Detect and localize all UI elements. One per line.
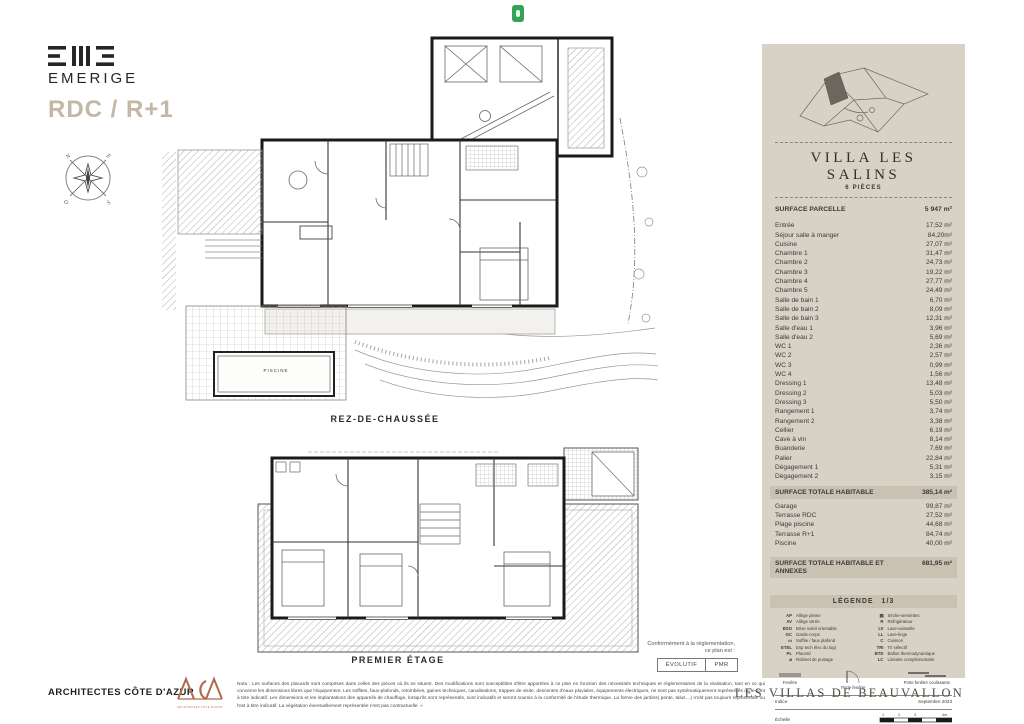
surface-room-value: 17,52 m²: [926, 221, 952, 230]
legend-row: LCLinéaire complémentaire: [867, 657, 953, 663]
parcel-surface-row: SURFACE PARCELLE 5 947 m²: [775, 205, 952, 214]
surface-room-value: 13,48 m²: [926, 379, 952, 388]
surface-room-value: 1,56 m²: [930, 370, 952, 379]
surface-room-label: Chambre 3: [775, 268, 808, 277]
surface-room-label: Garage: [775, 502, 797, 511]
surface-room-value: 84,74 m²: [926, 530, 952, 539]
parcel-label: SURFACE PARCELLE: [775, 205, 846, 214]
surface-room-label: Terrasse R+1: [775, 530, 814, 539]
surface-room-value: 5,50 m²: [930, 398, 952, 407]
total-habitable-band: SURFACE TOTALE HABITABLE 385,14 m²: [770, 486, 957, 499]
surface-room-value: 3,74 m²: [930, 407, 952, 416]
surface-room-value: 24,49 m²: [926, 286, 952, 295]
surface-row: Entrée17,52 m²: [775, 221, 952, 230]
surface-room-value: 24,73 m²: [926, 258, 952, 267]
legend-label: Linéaire complémentaire: [888, 657, 953, 663]
legend-abbr: ⌀: [775, 657, 796, 663]
villa-subtitle: 6 PIÈCES: [775, 185, 952, 191]
villa-title: VILLA LES SALINS: [775, 150, 952, 184]
scale-bar: 1 2 3 4m: [866, 713, 952, 724]
room-surface-list: Entrée17,52 m²Séjour salle à manger84,20…: [775, 221, 952, 481]
surface-room-label: Piscine: [775, 539, 796, 548]
surface-row: Plage piscine44,68 m²: [775, 520, 952, 529]
surface-room-value: 8,14 m²: [930, 435, 952, 444]
surface-row: WC 12,36 m²: [775, 342, 952, 351]
surface-row: Chambre 131,47 m²: [775, 249, 952, 258]
surface-room-label: Chambre 1: [775, 249, 808, 258]
surface-room-label: Séjour salle à manger: [775, 231, 839, 240]
surface-row: Dégagement 23,15 m²: [775, 472, 952, 481]
surface-room-label: Dégagement 2: [775, 472, 818, 481]
total-habitable-label: SURFACE TOTALE HABITABLE: [775, 489, 874, 496]
surface-room-value: 3,96 m²: [930, 324, 952, 333]
compliance-options: ÉVOLUTIF PMR: [657, 658, 738, 672]
pmr-button[interactable]: PMR: [705, 658, 738, 672]
surface-room-label: Palier: [775, 454, 792, 463]
surface-room-label: Cuisine: [775, 240, 797, 249]
surface-room-value: 31,47 m²: [926, 249, 952, 258]
legend-columns: APAllège pleineAVAllège vitréeBSOBrise s…: [775, 613, 952, 663]
legend-title-band: LÉGENDE1/3: [770, 595, 957, 608]
surface-room-label: Plage piscine: [775, 520, 814, 529]
compliance-note: Conformément à la réglementation, ce pla…: [590, 641, 735, 655]
surface-room-value: 12,31 m²: [926, 314, 952, 323]
info-panel: VILLA LES SALINS 6 PIÈCES SURFACE PARCEL…: [762, 44, 965, 678]
evolutif-button[interactable]: ÉVOLUTIF: [657, 658, 705, 672]
surface-room-value: 19,22 m²: [926, 268, 952, 277]
architect-name: ARCHITECTES CÔTE D'AZUR: [48, 687, 194, 698]
surface-room-label: Dégagement 1: [775, 463, 818, 472]
surface-room-label: Dressing 3: [775, 398, 807, 407]
floorplan-rdc: [150, 22, 660, 422]
rdc-caption: REZ-DE-CHAUSSÉE: [235, 414, 535, 424]
surface-room-value: 3,15 m²: [930, 472, 952, 481]
surface-room-label: Rangement 1: [775, 407, 815, 416]
scale-bar-icon: [866, 717, 952, 724]
surface-row: Rangement 13,74 m²: [775, 407, 952, 416]
aca-logo: ARCHITECTES CÔTE D'AZUR: [176, 675, 224, 709]
plan-sheet: EMERIGE RDC / R+1 N E S O: [0, 0, 1024, 724]
surface-row: Dressing 35,50 m²: [775, 398, 952, 407]
divider: [775, 197, 952, 198]
surface-row: Dressing 25,03 m²: [775, 389, 952, 398]
brand-name: EMERIGE: [48, 70, 138, 87]
compass-s: S: [106, 200, 112, 207]
surface-row: Salle d'eau 25,69 m²: [775, 333, 952, 342]
surface-room-value: 8,09 m²: [930, 305, 952, 314]
legend-left-column: APAllège pleineAVAllège vitréeBSOBrise s…: [775, 613, 861, 663]
echelle-label: Échelle: [775, 717, 790, 722]
surface-room-label: Cave à vin: [775, 435, 806, 444]
surface-row: WC 30,99 m²: [775, 361, 952, 370]
surface-room-label: Chambre 4: [775, 277, 808, 286]
surface-row: Chambre 524,49 m²: [775, 286, 952, 295]
surface-room-label: Dressing 2: [775, 389, 807, 398]
annex-surface-list: Garage99,87 m²Terrasse RDC27,52 m²Plage …: [775, 502, 952, 548]
project-name: LES VILLAS DE BEAUVALLON: [735, 686, 964, 701]
surface-row: Terrasse RDC27,52 m²: [775, 511, 952, 520]
surface-room-value: 3,38 m²: [930, 417, 952, 426]
surface-row: Dressing 113,48 m²: [775, 379, 952, 388]
compass-o: O: [62, 199, 70, 207]
surface-room-value: 2,36 m²: [930, 342, 952, 351]
surface-row: Rangement 23,38 m²: [775, 417, 952, 426]
surface-row: Cuisine27,07 m²: [775, 240, 952, 249]
legend-abbr: LC: [867, 657, 888, 663]
total-habitable-value: 385,14 m²: [922, 489, 952, 496]
surface-room-value: 27,52 m²: [926, 511, 952, 520]
floorplan-r1: [248, 446, 648, 664]
surface-room-value: 6,19 m²: [930, 426, 952, 435]
surface-room-value: 27,07 m²: [926, 240, 952, 249]
surface-row: Buanderie7,69 m²: [775, 444, 952, 453]
r1-caption: PREMIER ÉTAGE: [248, 655, 548, 665]
surface-room-value: 27,77 m²: [926, 277, 952, 286]
aca-logo-icon: [176, 675, 224, 703]
surface-row: Dégagement 15,31 m²: [775, 463, 952, 472]
surface-room-label: Salle de bain 1: [775, 296, 819, 305]
total-annexes-band: SURFACE TOTALE HABITABLE ET ANNEXES 681,…: [770, 557, 957, 578]
sliding-door-icon: [907, 670, 947, 679]
divider: [775, 142, 952, 143]
parcel-value: 5 947 m²: [925, 205, 952, 214]
compliance-line1: Conformément à la réglementation,: [590, 641, 735, 648]
surface-room-value: 0,99 m²: [930, 361, 952, 370]
surface-row: Salle de bain 28,09 m²: [775, 305, 952, 314]
legend-right-column: ▤Sèche-serviettesRRéfrigérateurLVLave-va…: [867, 613, 953, 663]
surface-row: Salle de bain 312,31 m²: [775, 314, 952, 323]
surface-room-value: 5,03 m²: [930, 389, 952, 398]
surface-room-value: 44,68 m²: [926, 520, 952, 529]
surface-row: Salle de bain 16,70 m²: [775, 296, 952, 305]
surface-row: Terrasse R+184,74 m²: [775, 530, 952, 539]
surface-room-value: 6,70 m²: [930, 296, 952, 305]
green-marker-icon: [512, 5, 524, 22]
legal-note: Nota : Les surfaces des placards sont co…: [237, 681, 765, 710]
surface-row: Chambre 224,73 m²: [775, 258, 952, 267]
french-door-icon: [845, 670, 861, 684]
window-icon: [777, 670, 803, 679]
surface-room-value: 5,69 m²: [930, 333, 952, 342]
surface-room-value: 40,00 m²: [926, 539, 952, 548]
surface-row: Chambre 319,22 m²: [775, 268, 952, 277]
emerige-logo-icon: [48, 46, 114, 66]
pool-label: PISCINE: [246, 368, 306, 373]
surface-room-value: 7,69 m²: [930, 444, 952, 453]
surface-room-label: Salle de bain 3: [775, 314, 819, 323]
legend-title: LÉGENDE: [833, 598, 874, 605]
surface-row: Cave à vin8,14 m²: [775, 435, 952, 444]
total-annexes-label: SURFACE TOTALE HABITABLE ET ANNEXES: [775, 560, 893, 575]
surface-room-value: 22,84 m²: [926, 454, 952, 463]
surface-room-label: Chambre 2: [775, 258, 808, 267]
compass-e: E: [104, 153, 112, 161]
surface-room-label: WC 4: [775, 370, 791, 379]
surface-room-label: Cellier: [775, 426, 794, 435]
surface-row: Salle d'eau 13,96 m²: [775, 324, 952, 333]
site-plan-sketch: [794, 60, 934, 142]
compass-icon: N E S O: [56, 146, 120, 210]
surface-room-value: 5,31 m²: [930, 463, 952, 472]
compass-n: N: [64, 153, 72, 161]
surface-room-label: Salle d'eau 1: [775, 324, 813, 333]
surface-row: WC 41,56 m²: [775, 370, 952, 379]
surface-room-label: WC 3: [775, 361, 791, 370]
surface-room-value: 84,20m²: [928, 231, 952, 240]
surface-room-label: Salle de bain 2: [775, 305, 819, 314]
legend-row: ⌀Robinet de puisage: [775, 657, 861, 663]
surface-room-value: 2,57 m²: [930, 351, 952, 360]
emerige-logo: EMERIGE: [48, 46, 138, 87]
surface-room-label: Terrasse RDC: [775, 511, 816, 520]
window-label: Fenêtre: [783, 680, 797, 685]
surface-room-label: Chambre 5: [775, 286, 808, 295]
surface-room-label: WC 1: [775, 342, 791, 351]
surface-room-label: Buanderie: [775, 444, 805, 453]
legend-label: Robinet de puisage: [796, 657, 861, 663]
sliding-door-label: Porte fenêtre coulissante: [904, 680, 950, 685]
surface-row: Piscine40,00 m²: [775, 539, 952, 548]
compliance-line2: ce plan est :: [590, 648, 735, 655]
surface-row: WC 22,57 m²: [775, 351, 952, 360]
surface-room-label: Entrée: [775, 221, 794, 230]
surface-row: Palier22,84 m²: [775, 454, 952, 463]
surface-row: Chambre 427,77 m²: [775, 277, 952, 286]
echelle-row: Échelle 1 2 3 4m: [775, 709, 952, 724]
surface-row: Séjour salle à manger84,20m²: [775, 231, 952, 240]
surface-row: Garage99,87 m²: [775, 502, 952, 511]
aca-logo-subtext: ARCHITECTES CÔTE D'AZUR: [176, 706, 224, 709]
surface-room-label: Salle d'eau 2: [775, 333, 813, 342]
total-annexes-value: 681,95 m²: [922, 560, 952, 567]
surface-room-value: 99,87 m²: [926, 502, 952, 511]
surface-row: Cellier6,19 m²: [775, 426, 952, 435]
surface-room-label: Dressing 1: [775, 379, 807, 388]
surface-room-label: WC 2: [775, 351, 791, 360]
surface-room-label: Rangement 2: [775, 417, 815, 426]
legend-page: 1/3: [882, 598, 895, 605]
